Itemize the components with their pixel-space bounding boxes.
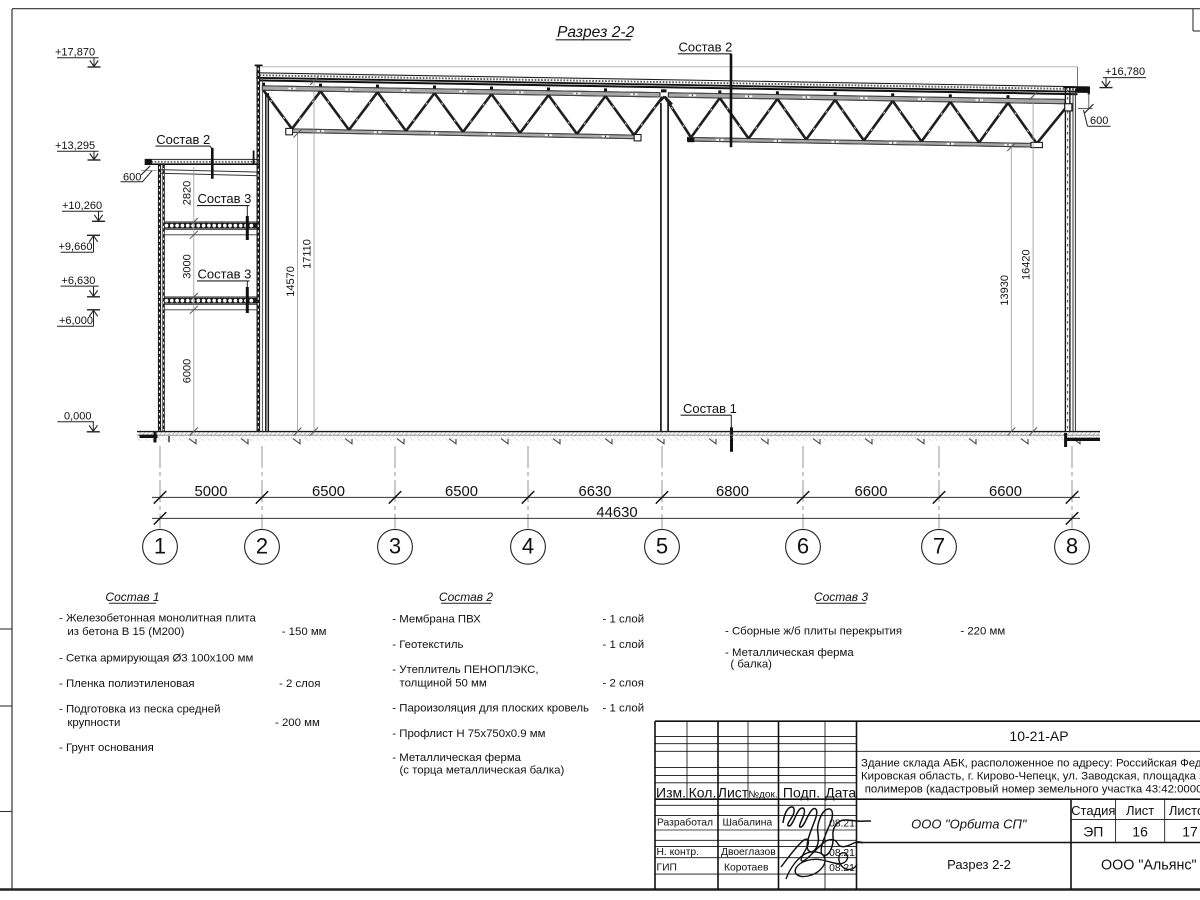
- svg-text:44630: 44630: [596, 505, 637, 521]
- svg-text:полимеров (кадастровый номер з: полимеров (кадастровый номер земельного …: [865, 784, 1200, 796]
- svg-text:- Пленка полиэтиленовая: - Пленка полиэтиленовая: [59, 678, 195, 690]
- svg-text:ООО "Альянс": ООО "Альянс": [1101, 858, 1197, 874]
- svg-text:6630: 6630: [579, 484, 612, 500]
- svg-text:Подп.: Подп.: [783, 784, 820, 800]
- svg-text:6600: 6600: [989, 484, 1022, 500]
- svg-text:- 220 мм: - 220 мм: [960, 625, 1005, 637]
- svg-text:Состав 3: Состав 3: [198, 266, 252, 281]
- svg-text:- Утеплитель ПЕНОПЛЭКС,: - Утеплитель ПЕНОПЛЭКС,: [392, 664, 538, 676]
- svg-text:- 1 слой: - 1 слой: [603, 614, 645, 626]
- svg-text:6600: 6600: [855, 484, 888, 500]
- svg-text:+10,260: +10,260: [62, 200, 102, 212]
- svg-text:10-21-АР: 10-21-АР: [1009, 728, 1068, 744]
- svg-text:ООО "Орбита СП": ООО "Орбита СП": [911, 817, 1028, 832]
- svg-text:- Металлическая ферма: - Металлическая ферма: [725, 647, 854, 659]
- svg-text:5: 5: [656, 534, 668, 559]
- svg-text:(с торца металлическая балка): (с торца металлическая балка): [400, 765, 565, 777]
- svg-text:- 2 слоя: - 2 слоя: [279, 678, 320, 690]
- svg-text:- 1 слой: - 1 слой: [603, 639, 645, 651]
- svg-text:- Металлическая ферма: - Металлическая ферма: [392, 752, 521, 764]
- svg-text:13930: 13930: [999, 275, 1011, 306]
- svg-text:- Геотекстиль: - Геотекстиль: [392, 639, 463, 651]
- svg-text:Разрез 2-2: Разрез 2-2: [557, 24, 635, 41]
- svg-text:5000: 5000: [195, 484, 228, 500]
- svg-text:+6,630: +6,630: [61, 275, 95, 287]
- svg-text:+6,000: +6,000: [59, 315, 93, 327]
- svg-text:ЭП: ЭП: [1083, 824, 1103, 840]
- svg-text:Разработал: Разработал: [657, 817, 713, 829]
- svg-text:Двоеглазов: Двоеглазов: [721, 847, 776, 858]
- svg-text:№док.: №док.: [748, 789, 777, 800]
- svg-text:Стадия: Стадия: [1071, 803, 1115, 818]
- svg-text:- Железобетонная монолитная п: - Железобетонная монолитная плита: [59, 613, 256, 625]
- svg-text:из бетона В 15 (М200): из бетона В 15 (М200): [67, 626, 184, 638]
- svg-text:Здание склада АБК, расположенн: Здание склада АБК, расположенное по адре…: [861, 758, 1200, 770]
- svg-text:Кол.: Кол.: [689, 784, 717, 800]
- svg-text:7: 7: [933, 534, 945, 559]
- svg-text:( балка): ( балка): [730, 659, 772, 671]
- svg-text:4: 4: [522, 534, 534, 559]
- svg-text:6500: 6500: [312, 484, 345, 500]
- svg-text:6000: 6000: [181, 359, 193, 383]
- svg-text:- Мембрана ПВХ: - Мембрана ПВХ: [392, 614, 481, 626]
- svg-text:- Сетка армирующая Ø3 100х100: - Сетка армирующая Ø3 100х100 мм: [59, 652, 253, 664]
- svg-text:Коротаев: Коротаев: [724, 863, 769, 874]
- svg-text:Состав 1: Состав 1: [105, 590, 159, 604]
- svg-text:Состав 1: Состав 1: [683, 401, 737, 416]
- svg-text:- 2 слоя: - 2 слоя: [603, 677, 644, 689]
- svg-text:6500: 6500: [445, 484, 478, 500]
- svg-text:2820: 2820: [181, 181, 193, 205]
- svg-text:толщиной 50 мм: толщиной 50 мм: [400, 677, 487, 689]
- svg-text:3000: 3000: [181, 254, 193, 278]
- svg-text:16: 16: [1132, 824, 1148, 840]
- svg-text:Изм.: Изм.: [656, 784, 686, 800]
- svg-text:6800: 6800: [716, 484, 749, 500]
- svg-text:крупности: крупности: [67, 717, 120, 729]
- svg-text:- Пароизоляция для плоских кро: - Пароизоляция для плоских кровель: [392, 703, 589, 715]
- svg-text:2: 2: [256, 534, 268, 559]
- svg-text:- Сборные ж/б плиты перекрытия: - Сборные ж/б плиты перекрытия: [725, 625, 902, 637]
- svg-text:Разрез 2-2: Разрез 2-2: [947, 857, 1011, 872]
- svg-text:Дата: Дата: [825, 784, 856, 800]
- svg-text:Состав 2: Состав 2: [156, 132, 210, 147]
- svg-text:- Профлист Н 75х750х0.9 мм: - Профлист Н 75х750х0.9 мм: [392, 728, 545, 740]
- svg-text:+9,660: +9,660: [59, 241, 93, 253]
- svg-text:Состав 3: Состав 3: [198, 191, 252, 206]
- svg-text:- Подготовка из песка средней: - Подготовка из песка средней: [59, 703, 221, 715]
- svg-text:600: 600: [1090, 115, 1108, 127]
- svg-text:Листов: Листов: [1169, 803, 1200, 818]
- svg-text:17110: 17110: [302, 239, 314, 269]
- svg-text:3: 3: [389, 534, 401, 559]
- svg-text:16420: 16420: [1021, 249, 1033, 280]
- svg-text:Состав 2: Состав 2: [679, 40, 733, 55]
- svg-text:Состав 3: Состав 3: [814, 590, 868, 604]
- svg-text:6: 6: [797, 534, 809, 559]
- svg-text:+16,780: +16,780: [1105, 66, 1145, 78]
- svg-text:Лист: Лист: [1126, 803, 1154, 818]
- svg-text:+13,295: +13,295: [55, 140, 95, 152]
- svg-text:14570: 14570: [285, 266, 297, 297]
- svg-text:Шабалина: Шабалина: [723, 817, 773, 829]
- svg-text:ГИП: ГИП: [657, 863, 677, 874]
- svg-text:+17,870: +17,870: [55, 47, 95, 59]
- svg-text:0,000: 0,000: [64, 411, 92, 423]
- svg-text:- 200 мм: - 200 мм: [275, 717, 320, 729]
- svg-text:- Грунт основания: - Грунт основания: [59, 742, 154, 754]
- svg-text:- 1 слой: - 1 слой: [603, 703, 645, 715]
- svg-text:Кировская область, г. Кирово-Ч: Кировская область, г. Кирово-Чепецк, ул.…: [861, 771, 1200, 783]
- svg-text:8: 8: [1066, 534, 1078, 559]
- svg-text:Состав 2: Состав 2: [439, 590, 493, 604]
- svg-text:Н. контр.: Н. контр.: [657, 847, 700, 858]
- svg-text:17: 17: [1182, 824, 1198, 840]
- svg-text:Лист: Лист: [718, 784, 749, 800]
- svg-text:- 150 мм: - 150 мм: [282, 626, 327, 638]
- svg-text:1: 1: [154, 534, 166, 559]
